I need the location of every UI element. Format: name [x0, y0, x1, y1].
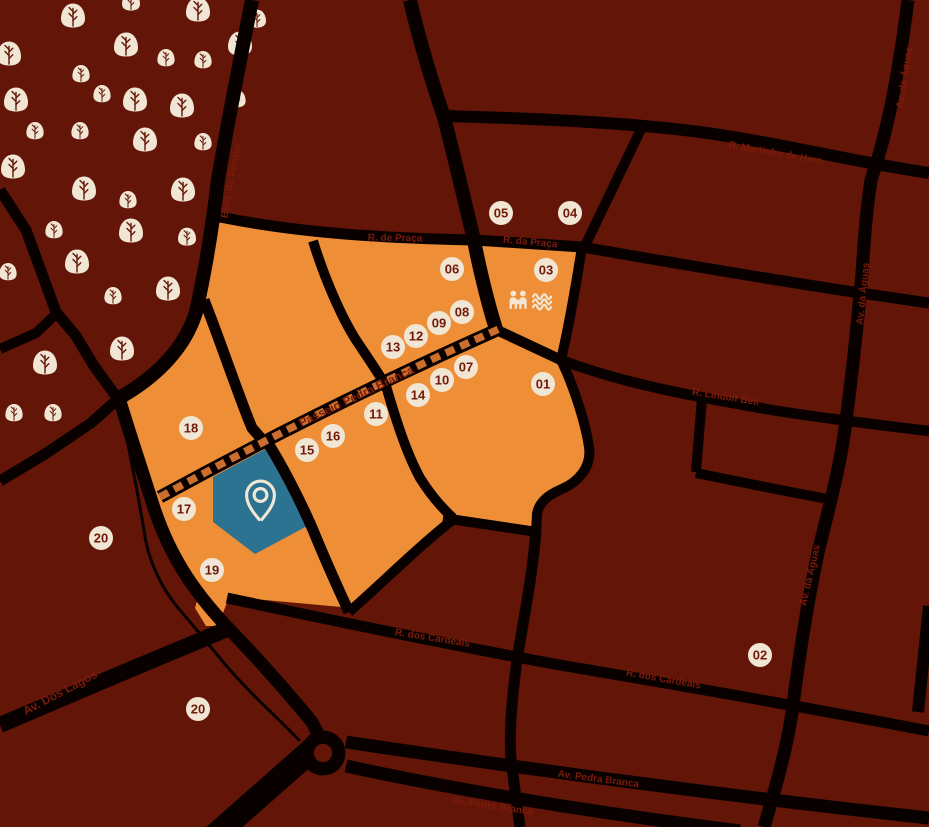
- svg-text:20: 20: [191, 702, 205, 717]
- svg-text:02: 02: [753, 648, 767, 663]
- svg-text:13: 13: [386, 340, 400, 355]
- svg-text:R. de Praça: R. de Praça: [368, 233, 423, 245]
- svg-text:10: 10: [435, 373, 449, 388]
- svg-text:08: 08: [455, 305, 469, 320]
- svg-text:04: 04: [563, 206, 578, 221]
- svg-text:15: 15: [300, 443, 314, 458]
- svg-text:11: 11: [369, 407, 383, 422]
- svg-text:12: 12: [409, 329, 423, 344]
- svg-text:03: 03: [539, 263, 553, 278]
- svg-text:17: 17: [177, 502, 191, 517]
- svg-text:20: 20: [94, 531, 108, 546]
- svg-text:01: 01: [536, 377, 550, 392]
- svg-text:19: 19: [205, 563, 219, 578]
- svg-text:07: 07: [459, 360, 473, 375]
- svg-text:09: 09: [432, 316, 446, 331]
- svg-text:14: 14: [411, 388, 426, 403]
- svg-text:06: 06: [445, 262, 459, 277]
- svg-text:16: 16: [326, 429, 340, 444]
- svg-text:05: 05: [494, 206, 508, 221]
- svg-text:18: 18: [184, 421, 198, 436]
